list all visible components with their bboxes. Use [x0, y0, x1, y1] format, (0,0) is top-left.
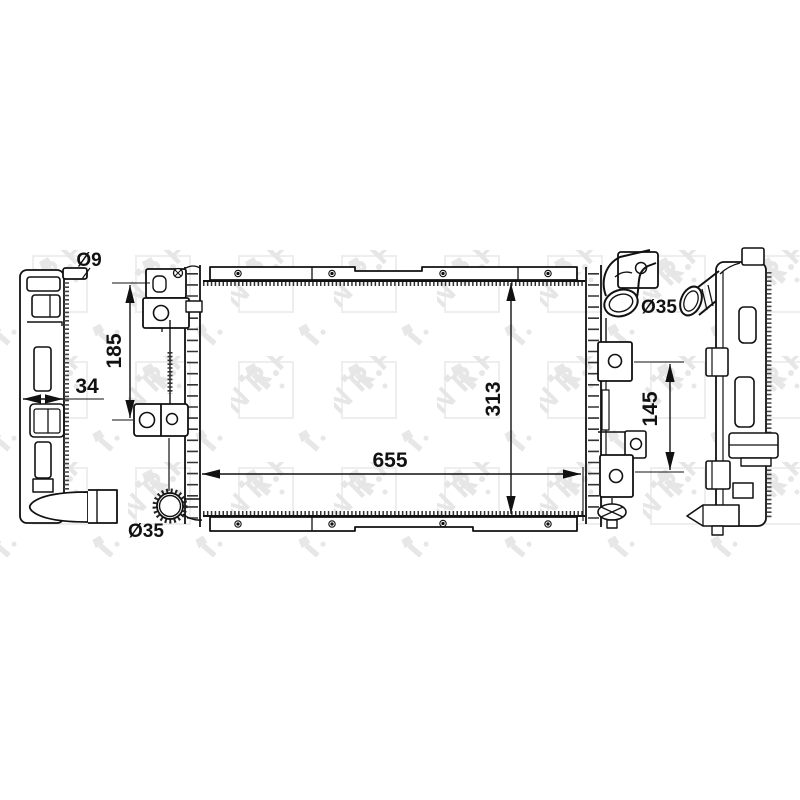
watermark-band [0, 243, 800, 557]
label-right-mount-spacing: 145 [639, 391, 662, 426]
radiator-line-drawing: NRF [0, 0, 800, 800]
label-bottom-port-diameter: Ø35 [128, 521, 164, 542]
label-core-width: 655 [372, 449, 407, 472]
mount-hole [609, 355, 622, 368]
label-left-mount-spacing: 185 [103, 333, 126, 368]
mount-hole [610, 470, 623, 483]
label-pin-diameter: Ø9 [76, 250, 101, 271]
label-side-depth: 34 [75, 375, 99, 398]
outlet-port [157, 493, 183, 519]
label-top-port-diameter: Ø35 [641, 297, 677, 318]
label-core-height: 313 [482, 381, 505, 416]
diagram-canvas: NRF [0, 0, 800, 800]
